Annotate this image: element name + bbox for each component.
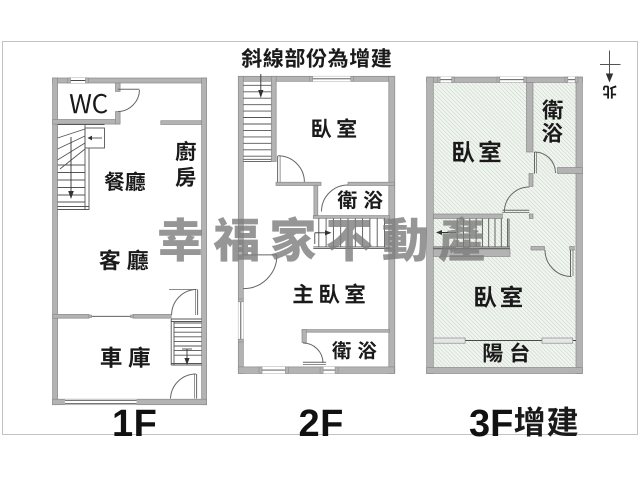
svg-text:2F: 2F (299, 403, 344, 445)
svg-text:1F: 1F (112, 403, 157, 445)
svg-text:3F: 3F (469, 403, 513, 445)
